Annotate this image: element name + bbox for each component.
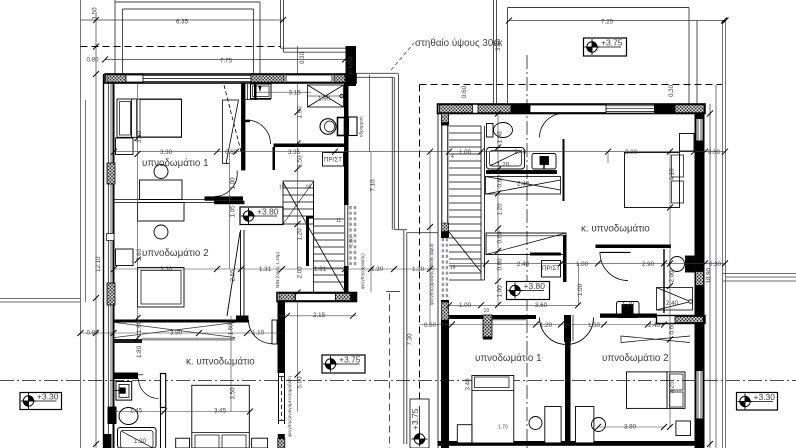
- svg-text:0.30: 0.30: [709, 261, 722, 268]
- svg-text:30 ΚΛΙΜ: 30 ΚΛΙΜ: [348, 56, 354, 75]
- svg-text:0.30: 0.30: [668, 84, 675, 97]
- svg-text:0.60: 0.60: [497, 175, 504, 188]
- svg-text:12.10: 12.10: [95, 256, 102, 272]
- svg-text:1.60: 1.60: [136, 320, 143, 333]
- svg-text:υπνοδωμάτιο 1: υπνοδωμάτιο 1: [142, 158, 209, 169]
- svg-text:2.40: 2.40: [514, 149, 527, 156]
- svg-text:7.30: 7.30: [407, 333, 414, 346]
- svg-text:φεγγίτης(οροφής)(ανοιγ.)αμυβ: φεγγίτης(οροφής)(ανοιγ.)αμυβ: [428, 243, 434, 305]
- svg-text:11: 11: [336, 218, 341, 224]
- svg-text:1.20: 1.20: [497, 162, 510, 169]
- svg-text:1.50: 1.50: [92, 7, 99, 20]
- svg-text:2.55: 2.55: [230, 269, 237, 282]
- svg-text:κ. υπνοδωμάτιο: κ. υπνοδωμάτιο: [186, 357, 255, 368]
- svg-text:1.31: 1.31: [259, 266, 272, 273]
- svg-text:+3.30: +3.30: [754, 392, 776, 402]
- svg-text:1.50: 1.50: [588, 322, 601, 329]
- svg-text:3.45: 3.45: [214, 408, 227, 415]
- svg-text:υδρορροή: υδρορροή: [358, 116, 364, 137]
- svg-text:2.00: 2.00: [349, 237, 354, 246]
- svg-text:2.40: 2.40: [648, 322, 661, 329]
- svg-text:1.91: 1.91: [314, 266, 327, 273]
- svg-text:1.20: 1.20: [540, 322, 553, 329]
- svg-text:+3.75: +3.75: [601, 38, 623, 48]
- svg-text:1.00: 1.00: [459, 302, 472, 309]
- svg-text:3.35: 3.35: [288, 149, 301, 156]
- svg-text:1.30: 1.30: [371, 266, 384, 273]
- svg-text:1.70: 1.70: [498, 425, 508, 431]
- svg-text:υπνοδωμάτιο 2: υπνοδωμάτιο 2: [142, 248, 209, 259]
- svg-text:3.40: 3.40: [465, 378, 472, 391]
- svg-text:0.60: 0.60: [225, 149, 238, 156]
- svg-text:1.00: 1.00: [576, 261, 589, 268]
- svg-text:0.60: 0.60: [708, 149, 721, 156]
- svg-text:1.45: 1.45: [130, 408, 143, 415]
- svg-text:φεγγίτης(ανοιγόμενο)αμυβολή: φεγγίτης(ανοιγόμενο)αμυβολή: [286, 376, 292, 437]
- svg-text:1.20: 1.20: [497, 203, 504, 216]
- svg-text:3.30: 3.30: [160, 266, 173, 273]
- svg-text:1.00: 1.00: [459, 149, 472, 156]
- svg-text:υπνοδωμάτιο 2: υπνοδωμάτιο 2: [602, 353, 669, 364]
- svg-text:3.90: 3.90: [170, 330, 183, 337]
- svg-text:στηθαίο ύψους 30εκ: στηθαίο ύψους 30εκ: [415, 38, 503, 49]
- svg-text:ΝτΝ (ύψος 1,10μ): ΝτΝ (ύψος 1,10μ): [274, 251, 280, 288]
- svg-text:+3.30: +3.30: [37, 392, 59, 402]
- svg-text:+3.80: +3.80: [524, 281, 546, 291]
- svg-text:7.75: 7.75: [220, 58, 233, 65]
- svg-text:3.60: 3.60: [136, 130, 143, 143]
- svg-text:18: 18: [306, 185, 312, 191]
- svg-text:2.90: 2.90: [642, 261, 655, 268]
- svg-text:2.40: 2.40: [517, 261, 530, 268]
- svg-text:3.15: 3.15: [289, 90, 302, 97]
- svg-text:0.60: 0.60: [424, 322, 437, 329]
- svg-text:2.40: 2.40: [666, 300, 679, 307]
- svg-text:0.80: 0.80: [87, 330, 100, 337]
- svg-text:2.00: 2.00: [297, 266, 304, 279]
- svg-text:1.30: 1.30: [412, 266, 425, 273]
- svg-text:1.90: 1.90: [318, 96, 331, 103]
- svg-text:5.00: 5.00: [297, 376, 304, 389]
- svg-text:ΠΡ/ΣΤ: ΠΡ/ΣΤ: [542, 265, 560, 272]
- svg-text:κ. υπνοδωμάτιο: κ. υπνοδωμάτιο: [581, 224, 650, 235]
- svg-text:1.70: 1.70: [622, 301, 635, 308]
- svg-text:2.15: 2.15: [313, 312, 326, 319]
- svg-text:0.60: 0.60: [461, 85, 468, 98]
- svg-text:υπνοδωμάτιο 1: υπνοδωμάτιο 1: [475, 353, 542, 364]
- svg-text:0.80: 0.80: [497, 258, 504, 271]
- svg-text:ΠΡ/ΣΤ: ΠΡ/ΣΤ: [324, 157, 342, 164]
- svg-text:+3.75: +3.75: [410, 408, 420, 430]
- svg-text:3.60: 3.60: [535, 302, 548, 309]
- svg-text:4: 4: [451, 154, 454, 160]
- svg-text:1.05: 1.05: [230, 205, 237, 218]
- svg-text:3.25: 3.25: [669, 381, 676, 394]
- svg-text:3.30: 3.30: [160, 149, 173, 156]
- svg-text:6.35: 6.35: [176, 19, 189, 26]
- svg-text:1.80: 1.80: [497, 131, 504, 144]
- svg-text:0.30: 0.30: [299, 51, 306, 64]
- svg-text:10.90: 10.90: [706, 267, 713, 283]
- svg-text:1.10: 1.10: [252, 330, 265, 337]
- svg-text:1.50: 1.50: [297, 155, 304, 168]
- svg-text:1.60: 1.60: [228, 323, 235, 336]
- svg-text:19: 19: [484, 308, 490, 314]
- svg-text:4.10: 4.10: [669, 168, 676, 181]
- svg-text:16: 16: [450, 265, 456, 271]
- svg-text:1.00: 1.00: [230, 177, 237, 190]
- svg-text:1.00: 1.00: [497, 285, 504, 298]
- svg-text:0.60: 0.60: [497, 231, 504, 244]
- svg-text:2.00: 2.00: [625, 149, 638, 156]
- svg-text:7.10: 7.10: [370, 179, 377, 192]
- svg-text:1.90: 1.90: [297, 106, 304, 119]
- svg-text:19: 19: [279, 185, 285, 191]
- svg-text:+3.80: +3.80: [257, 207, 279, 217]
- svg-text:1.20: 1.20: [297, 228, 304, 241]
- svg-text:3.50: 3.50: [230, 387, 237, 400]
- svg-text:φεγγίτης(οροφής): φεγγίτης(οροφής): [359, 253, 365, 289]
- svg-text:2.00: 2.00: [669, 270, 676, 283]
- svg-text:3.90: 3.90: [624, 424, 637, 431]
- svg-text:1.80: 1.80: [136, 345, 143, 358]
- svg-text:0.80: 0.80: [87, 57, 100, 64]
- svg-text:2.40: 2.40: [517, 181, 530, 188]
- svg-text:1.20: 1.20: [134, 438, 147, 445]
- svg-text:0.60: 0.60: [669, 322, 676, 335]
- svg-text:+3.75: +3.75: [339, 355, 361, 365]
- svg-text:1.00: 1.00: [577, 283, 584, 296]
- svg-text:7.25: 7.25: [601, 19, 614, 26]
